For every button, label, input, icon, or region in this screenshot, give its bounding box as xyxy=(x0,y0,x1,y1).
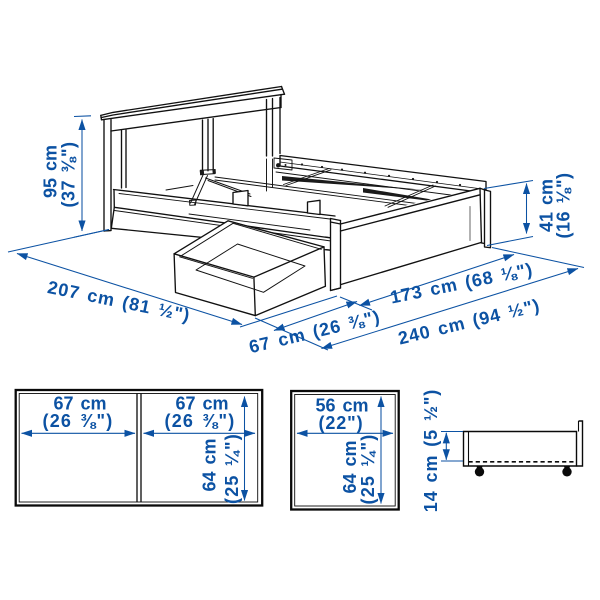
svg-text:64 cm: 64 cm xyxy=(340,440,360,493)
svg-text:(16 ⅛"): (16 ⅛") xyxy=(553,172,573,238)
svg-text:(26 ⅜"): (26 ⅜") xyxy=(43,411,114,431)
svg-text:207 cm (81 ½"): 207 cm (81 ½") xyxy=(46,277,192,326)
svg-text:14 cm (5 ½"): 14 cm (5 ½") xyxy=(421,389,441,512)
svg-text:64 cm: 64 cm xyxy=(199,438,219,491)
svg-text:(25 ¼"): (25 ¼") xyxy=(222,433,242,504)
svg-text:(26 ⅜"): (26 ⅜") xyxy=(165,411,236,431)
svg-text:67 cm (26 ⅜"): 67 cm (26 ⅜") xyxy=(247,306,382,357)
svg-text:240 cm (94 ½"): 240 cm (94 ½") xyxy=(396,295,542,348)
svg-text:(37 ⅜"): (37 ⅜") xyxy=(58,141,78,207)
svg-text:(22"): (22") xyxy=(318,413,363,433)
svg-text:(25 ¼"): (25 ¼") xyxy=(358,434,378,505)
svg-text:95 cm: 95 cm xyxy=(40,145,60,198)
